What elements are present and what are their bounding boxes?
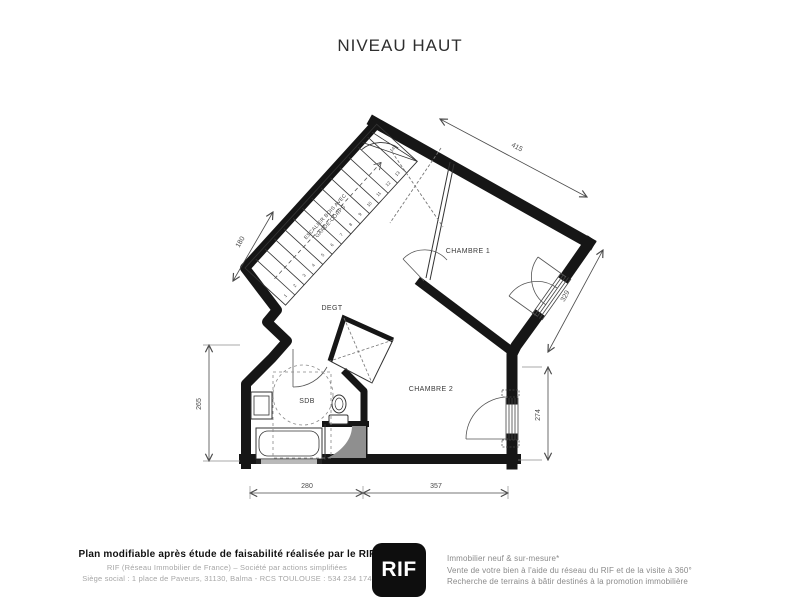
svg-text:1: 1 <box>283 293 289 299</box>
footer-legal-block: Plan modifiable après étude de faisabili… <box>62 549 392 583</box>
dim-lower-right: 274 <box>535 409 542 421</box>
shower-tray <box>327 426 366 458</box>
floor-plan-page: NIVEAU HAUT <box>0 0 800 600</box>
svg-text:6: 6 <box>329 242 335 248</box>
dim-upper-left: 180 <box>235 235 247 249</box>
dim-upper-right: 329 <box>560 289 572 303</box>
svg-text:4: 4 <box>311 262 317 268</box>
room-label-sdb: SDB <box>299 398 315 405</box>
room-label-chambre1: CHAMBRE 1 <box>446 248 490 255</box>
rif-logo: RIF <box>372 543 426 597</box>
footer-services-block: Immobilier neuf & sur-mesure* Vente de v… <box>447 553 747 588</box>
footer-company-line: RIF (Réseau Immobilier de France) – Soci… <box>62 563 392 572</box>
footer-service-line1: Immobilier neuf & sur-mesure* <box>447 553 747 565</box>
washbasin <box>251 392 272 419</box>
closet <box>330 318 393 383</box>
toilet <box>329 395 348 424</box>
dim-bottom-left: 280 <box>301 483 313 490</box>
footer-service-line3: Recherche de terrains à bâtir destinés à… <box>447 576 747 588</box>
room-label-chambre2: CHAMBRE 2 <box>409 386 453 393</box>
svg-text:12: 12 <box>384 180 391 187</box>
dim-bottom-right: 357 <box>430 483 442 490</box>
svg-text:9: 9 <box>357 211 363 217</box>
floor-plan-drawing: 1 2 3 4 5 6 7 8 9 10 11 12 13 14 ESCALIE… <box>0 0 800 600</box>
svg-text:11: 11 <box>375 190 382 197</box>
svg-text:5: 5 <box>320 252 326 258</box>
dim-top: 415 <box>510 142 524 154</box>
turning-radius <box>273 365 333 425</box>
footer-service-line2: Vente de votre bien à l'aide du réseau d… <box>447 565 747 577</box>
svg-text:8: 8 <box>348 221 354 227</box>
svg-text:3: 3 <box>301 272 307 278</box>
svg-text:10: 10 <box>366 200 373 207</box>
dim-lower-left: 265 <box>196 398 203 410</box>
staircase: 1 2 3 4 5 6 7 8 9 10 11 12 13 14 ESCALIE… <box>245 124 417 305</box>
svg-text:2: 2 <box>292 283 298 289</box>
room-label-degt: DEGT <box>321 305 342 312</box>
chambre1-west-partition <box>426 162 454 280</box>
bathtub <box>256 428 322 459</box>
rif-logo-text: RIF <box>381 558 416 582</box>
footer-address-line: Siège social : 1 place de Paveurs, 31130… <box>62 574 392 583</box>
svg-text:7: 7 <box>339 232 345 238</box>
footer-plan-note: Plan modifiable après étude de faisabili… <box>62 549 392 560</box>
svg-text:13: 13 <box>394 170 401 177</box>
